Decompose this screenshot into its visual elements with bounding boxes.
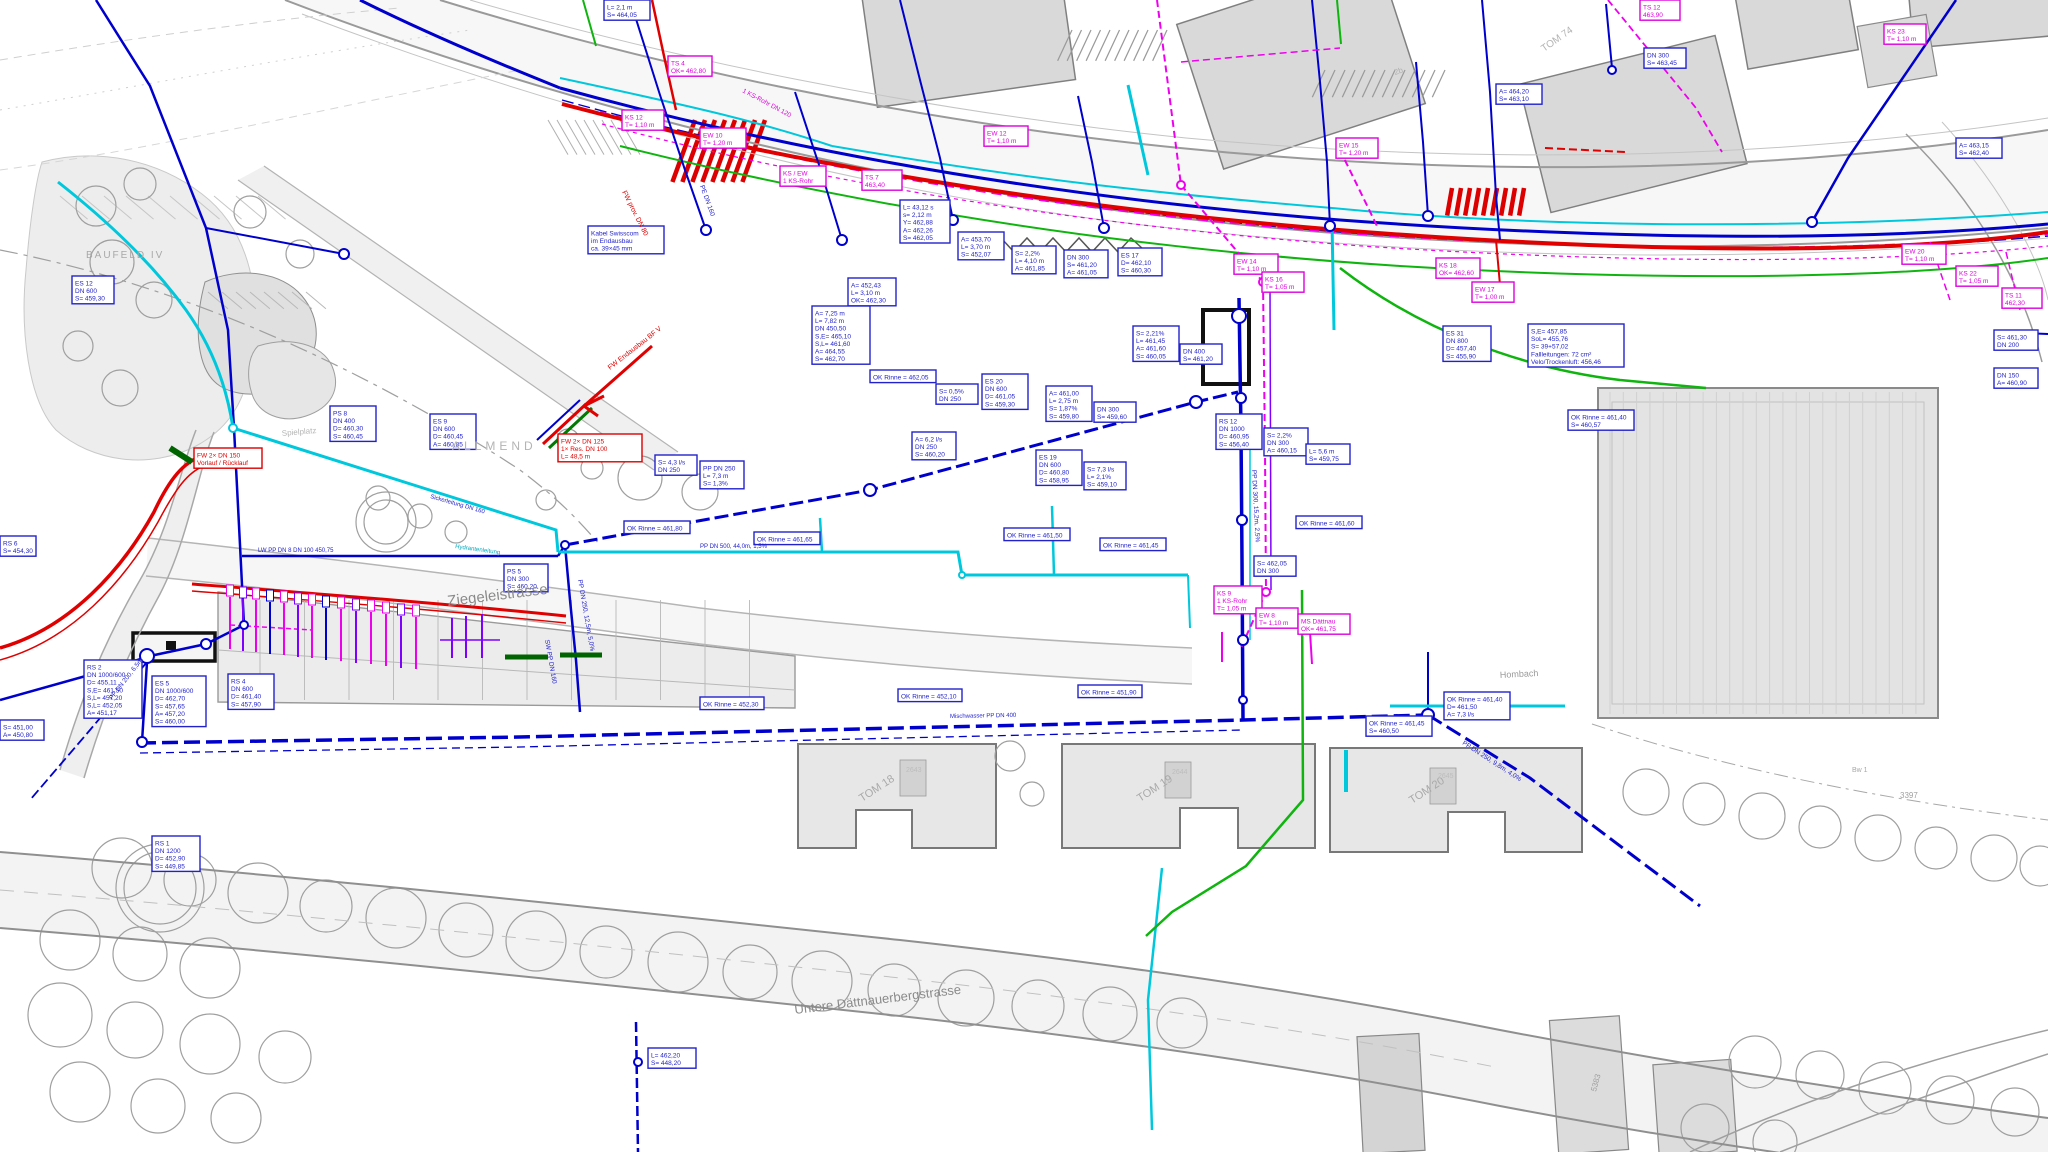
annotation-text: OK= 462,30 [851,298,886,305]
annotation-text: A= 461,60 [1136,346,1166,353]
annotation-box: A= 6,2 l/sDN 250S= 460,20 [912,432,956,460]
annotation-box: OK Rinne = 452,10 [898,689,962,702]
service-stub-box [295,593,302,604]
annotation-text: S= 462,70 [815,356,845,363]
annotation-text: A= 461,00 [1049,391,1079,398]
manhole-node [1190,396,1202,408]
annotation-text: S= 463,10 [1499,96,1529,103]
annotation-text: OK Rinne = 461,45 [1369,721,1425,728]
annotation-text: Fallleitungen: 72 cm² [1531,351,1592,358]
annotation-text: D= 452,90 [155,856,186,863]
annotation-text: S= 462,05 [1257,561,1287,568]
annotation-text: S= 457,90 [231,701,261,708]
annotation-text: KS 22 [1959,271,1977,278]
annotation-text: L= 2,1% [1087,474,1111,481]
tree-symbol [1855,815,1901,861]
annotation-box: EW 15T= 1,20 m [1336,138,1378,158]
annotation-text: KS 16 [1265,277,1283,284]
annotation-text: T= 1,10 m [625,122,654,129]
annotation-box: RS 12DN 1000D= 460,95S= 456,40 [1216,414,1262,449]
annotation-box: TS 12463,90 [1640,0,1680,20]
annotation-text: PS 8 [333,411,347,418]
annotation-text: ca. 39×45 mm [591,246,632,253]
annotation-text: S= 459,30 [985,401,1015,408]
annotation-box: DN 400S= 461,20 [1180,344,1222,364]
annotation-text: RS 1 [155,841,170,848]
annotation-text: TS 7 [865,175,879,182]
annotation-box: OK Rinne = 461,45 [1100,538,1166,551]
tree-symbol [1915,827,1957,869]
map-label: LW PP DN 8 DN 100 450,75 [258,548,334,554]
annotation-text: DN 600 [1039,462,1061,469]
annotation-text: Kabel Swisscom [591,231,639,238]
manhole-node [1807,217,1817,227]
tree-symbol [1020,782,1044,806]
annotation-text: DN 450,50 [815,326,846,333]
annotation-box: OK Rinne = 461,60 [1296,516,1362,529]
service-stub-box [383,602,390,613]
utility-plan-canvas[interactable]: ES 12DN 600S= 459,30RS 6S= 454,30RS 2DN … [0,0,2048,1152]
service-stub-box [253,588,260,599]
annotation-text: S= 452,07 [961,252,991,259]
annotation-text: OK Rinne = 462,05 [873,375,929,382]
sewer-line [140,715,1428,743]
annotation-box: OK Rinne = 461,40D= 461,50A= 7,3 l/s [1444,692,1510,720]
annotation-text: DN 600 [231,686,253,693]
map-label: PP DN 300, 15,2m, 2,5% [1250,470,1261,543]
annotation-text: FW 2× DN 125 [561,439,605,446]
manhole-node [1177,181,1185,189]
annotation-box: TS 11462,30 [2002,288,2042,308]
annotation-text: 462,30 [2005,300,2025,307]
annotation-text: A= 7,3 l/s [1447,712,1475,719]
annotation-text: L= 2,75 m [1049,398,1078,405]
annotation-text: S= 460,20 [915,452,945,459]
annotation-box: L= 5,6 mS= 459,75 [1306,444,1350,464]
annotation-box: OK Rinne = 462,05 [870,370,936,383]
contour-line [0,70,520,170]
annotation-text: A= 462,26 [903,227,933,234]
annotation-text: MS Dättnau [1301,619,1336,626]
annotation-text: KS 23 [1887,29,1905,36]
service-stub-box [240,587,247,598]
annotation-text: OK= 462,80 [671,68,706,75]
annotation-box: L= 43,12 ss= 2,12 mY= 462,88A= 462,26S= … [900,200,950,243]
island-hatch [584,120,604,155]
service-stub-box [281,591,288,602]
annotation-text: DN 400 [1183,349,1205,356]
annotation-text: 463,40 [865,182,885,189]
annotation-text: S= 457,65 [155,703,185,710]
building-hall [1598,388,1938,718]
tree-symbol [234,196,266,228]
annotation-box: RS 6S= 454,30 [0,536,36,556]
tree-symbol [107,1002,163,1058]
annotation-box: TS 7463,40 [862,170,902,190]
annotation-box: OK Rinne = 461,50 [1004,528,1070,541]
tree-symbol [1799,806,1841,848]
annotation-text: ES 19 [1039,455,1057,462]
annotation-text: L= 461,45 [1136,338,1165,345]
annotation-text: s= 2,12 m [903,212,932,219]
service-stub-box [368,600,375,611]
annotation-box: S= 7,3 l/sL= 2,1%S= 459,10 [1084,462,1126,490]
tree-symbol [1971,835,2017,881]
annotation-text: S= 460,57 [1571,422,1601,429]
annotation-box: RS 1DN 1200D= 452,90S= 449,85 [152,836,200,871]
annotation-text: EW 20 [1905,249,1925,256]
annotation-text: S= 460,50 [1369,728,1399,735]
annotation-text: S= 0,5% [939,389,964,396]
annotation-box: KS 22T= 1,05 m [1956,266,1998,286]
annotation-text: T= 1,10 m [987,138,1016,145]
service-stub-box [309,594,316,605]
annotation-text: S= 2,2% [1267,433,1292,440]
annotation-box: OK Rinne = 461,40S= 460,57 [1568,410,1634,430]
annotation-text: L= 4,10 m [1015,258,1044,265]
annotation-text: S= 459,60 [1097,414,1127,421]
annotation-box: EW 8T= 1,10 m [1256,608,1298,628]
annotation-box: DN 300S= 459,60 [1094,402,1136,422]
annotation-text: FW 2× DN 150 [197,453,241,460]
tree-symbol [131,1079,185,1133]
annotation-text: Velo/Trockenluft: 456,46 [1531,359,1601,366]
annotation-text: L= 3,70 m [961,244,990,251]
service-stub-box [398,604,405,615]
annotation-text: DN 600 [433,426,455,433]
annotation-box: KS / EW1 KS-Rohr [780,166,826,186]
stair-core [900,760,926,796]
gas-line [583,0,596,46]
annotation-text: ES 9 [433,419,447,426]
manhole-node [864,484,876,496]
manhole-node [201,639,211,649]
tree-symbol [50,1062,110,1122]
annotation-text: L= 462,20 [651,1053,680,1060]
annotation-box: ES 5DN 1000/600D= 462,70S= 457,65A= 457,… [152,676,206,727]
manhole-node [1238,635,1248,645]
annotation-box: KS 23T= 1,10 m [1884,24,1926,44]
annotation-text: S,L= 452,05 [87,703,123,710]
annotation-box: L= 2,1 mS= 464,05 [604,0,650,20]
annotation-text: A= 450,80 [3,732,33,739]
annotation-text: S= 1,87% [1049,406,1078,413]
annotation-box: KS 18OK= 462,60 [1436,258,1480,278]
map-label: Spielplatz [281,426,316,438]
annotation-box: OK Rinne = 461,45S= 460,50 [1366,716,1432,736]
annotation-text: S= 459,75 [1309,456,1339,463]
annotation-box: OK Rinne = 461,65 [754,532,820,545]
annotation-text: A= 7,25 m [815,311,845,318]
annotation-text: S= 39+57,02 [1531,344,1569,351]
annotation-text: S= 7,3 l/s [1087,467,1115,474]
annotation-text: S= 1,3% [703,481,728,488]
manhole-node [1423,211,1433,221]
annotation-text: S= 464,05 [607,12,637,19]
annotation-box: A= 463,15S= 462,40 [1956,138,2002,158]
map-label: Hombach [1500,668,1539,680]
map-label: 2643 [906,767,922,774]
annotation-text: D= 460,95 [1219,434,1250,441]
service-stub-box [413,605,420,616]
manhole-node [1262,588,1270,596]
annotation-text: D= 461,40 [231,694,262,701]
annotation-text: S= 461,30 [1997,335,2027,342]
annotation-box: KS 16T= 1,05 m [1262,272,1304,292]
annotation-text: KS 18 [1439,263,1457,270]
bottom-road-surface [0,852,2048,1152]
annotation-text: DN 800 [1446,338,1468,345]
tree-symbol [1623,769,1669,815]
annotation-text: S,E= 457,85 [1531,329,1567,336]
annotation-text: D= 462,70 [155,696,186,703]
annotation-text: S= 451,00 [3,725,33,732]
annotation-text: S= 460,30 [1121,268,1151,275]
annotation-box: EW 14T= 1,10 m [1234,254,1278,274]
annotation-text: 1 KS-Rohr [783,178,814,185]
annotation-box: FW 2× DN 1251× Res. DN 100L= 48,5 m [558,434,642,462]
manhole-node [137,737,147,747]
annotation-text: S= 459,30 [75,296,105,303]
annotation-text: S= 462,05 [903,235,933,242]
parking-hatch [1422,70,1435,97]
annotation-text: TS 4 [671,61,685,68]
annotation-text: PS 5 [507,569,521,576]
annotation-text: S,E= 465,10 [815,333,851,340]
annotation-text: DN 300 [1257,568,1279,575]
annotation-text: S= 463,45 [1647,60,1677,67]
annotation-text: 1 KS-Rohr [1217,598,1248,605]
annotation-text: S= 459,10 [1087,482,1117,489]
annotation-text: OK= 462,60 [1439,270,1474,277]
manhole-node [240,621,248,629]
annotation-text: ES 20 [985,379,1003,386]
manhole-node [837,235,847,245]
manhole-node [1325,221,1335,231]
annotation-text: DN 600 [75,288,97,295]
manhole-node [1608,66,1616,74]
annotation-text: OK Rinne = 452,30 [703,702,759,709]
annotation-text: T= 1,05 m [1217,606,1246,613]
manhole-node [1232,309,1246,323]
annotation-text: T= 1,20 m [1339,150,1368,157]
annotation-text: S= 4,3 l/s [658,460,686,467]
manhole-node [561,541,569,549]
annotation-text: D= 460,80 [1039,470,1070,477]
annotation-box: DN 150A= 460,90 [1994,368,2038,388]
annotation-box: S= 2,2%L= 4,10 mA= 461,85 [1012,246,1056,274]
annotation-text: D= 457,40 [1446,346,1477,353]
sewer-line [142,662,147,742]
annotation-box: A= 461,00L= 2,75 mS= 1,87%S= 459,80 [1046,386,1092,421]
annotation-text: T= 1,00 m [1475,294,1504,301]
annotation-box: ES 20DN 600D= 461,05S= 459,30 [982,374,1028,409]
annotation-box: PS 8DN 400D= 460,30S= 460,45 [330,406,376,441]
pond-2 [249,342,336,419]
island-hatch [575,120,595,155]
annotation-text: A= 464,55 [815,349,845,356]
path-edge [264,166,678,452]
annotation-box: ES 12DN 600S= 459,30 [72,276,114,304]
tree-symbol [180,1014,240,1074]
annotation-text: DN 1000/600 [87,672,126,679]
annotation-text: EW 8 [1259,613,1275,620]
annotation-text: RS 12 [1219,419,1237,426]
annotation-text: OK Rinne = 452,10 [901,694,957,701]
annotation-text: ES 17 [1121,253,1139,260]
tree-symbol [995,741,1025,771]
annotation-text: T= 1,10 m [1259,620,1288,627]
annotation-text: DN 300 [1267,440,1289,447]
annotation-text: A= 453,70 [961,237,991,244]
annotation-text: Vorlauf / Rücklauf [197,460,248,467]
annotation-text: S= 459,80 [1049,413,1079,420]
service-stub-box [353,599,360,610]
annotation-box: DN 300S= 463,45 [1644,48,1686,68]
annotation-text: DN 1000/600 [155,688,194,695]
annotation-text: EW 14 [1237,259,1257,266]
annotation-text: A= 451,17 [87,710,117,717]
annotation-text: T= 1,05 m [1265,284,1294,291]
annotation-text: EW 17 [1475,287,1495,294]
annotation-text: DN 250 [939,396,961,403]
annotation-text: L= 3,10 m [851,290,880,297]
tree-symbol [2020,846,2048,886]
annotation-text: S,L= 461,60 [815,341,851,348]
annotation-text: S= 448,20 [651,1060,681,1067]
annotation-box: KS 12T= 1,10 m [622,110,664,130]
annotation-text: L= 43,12 s [903,205,934,212]
annotation-text: S= 460,45 [333,433,363,440]
manhole-node [1239,696,1247,704]
annotation-box: S= 462,05DN 300 [1254,556,1296,576]
annotation-text: S= 461,20 [1067,262,1097,269]
sewer-line [1606,4,1612,68]
annotation-text: OK Rinne = 461,65 [757,537,813,544]
map-label: 2644 [1172,769,1188,776]
annotation-text: S= 456,40 [1219,441,1249,448]
annotation-text: S= 449,85 [155,863,185,870]
annotation-box: S= 4,3 l/sDN 250 [655,455,697,475]
annotation-box: S= 461,30DN 200 [1994,330,2038,350]
annotation-box: A= 452,43L= 3,10 mOK= 462,30 [848,278,896,306]
manhole-node [701,225,711,235]
annotation-text: EW 10 [703,133,723,140]
annotation-box: ES 17D= 462,10S= 460,30 [1118,248,1162,276]
annotation-text: DN 1000 [1219,426,1245,433]
annotation-text: L= 5,6 m [1309,449,1334,456]
island-hatch [593,120,613,155]
annotation-text: D= 460,30 [333,426,364,433]
sewer-line [1239,298,1243,720]
manhole-node [1237,515,1247,525]
tree-symbol [408,504,432,528]
annotation-text: RS 6 [3,541,18,548]
service-stub-box [338,597,345,608]
annotation-text: DN 150 [1997,373,2019,380]
annotation-box: RS 4DN 600D= 461,40S= 457,90 [228,674,274,709]
water-line [558,552,1188,575]
manhole-node [1099,223,1109,233]
annotation-text: RS 2 [87,665,102,672]
annotation-box: ES 31DN 800D= 457,40S= 455,90 [1443,326,1491,361]
annotation-text: S= 458,95 [1039,477,1069,484]
map-label: BAUFELD IV [86,250,164,261]
manhole-node [339,249,349,259]
annotation-text: A= 460,15 [1267,448,1297,455]
annotation-text: ES 31 [1446,331,1464,338]
annotation-text: EW 15 [1339,143,1359,150]
annotation-text: DN 400 [333,418,355,425]
annotation-text: KS 12 [625,115,643,122]
island-hatch [557,120,577,155]
annotation-box: A= 7,25 mL= 7,82 mDN 450,50S,E= 465,10S,… [812,306,870,364]
annotation-box: EW 12T= 1,10 m [984,126,1028,146]
annotation-text: D= 462,10 [1121,260,1152,267]
annotation-text: S= 462,40 [1959,150,1989,157]
annotation-text: T= 1,05 m [1959,278,1988,285]
annotation-box: PP DN 250L= 7,3 mS= 1,3% [700,461,744,489]
water-line [1188,575,1190,628]
structure-black-fill [166,641,176,650]
annotation-text: DN 300 [1067,255,1089,262]
map-label: ALLMEND [452,439,537,453]
tree-symbol [1739,793,1785,839]
annotation-box: OK Rinne = 451,90 [1078,685,1142,698]
annotation-text: 463,90 [1643,12,1663,19]
annotation-text: KS 9 [1217,591,1231,598]
annotation-text: A= 460,90 [1997,380,2027,387]
manhole-node [634,1058,642,1066]
manhole-node [1236,393,1246,403]
annotation-text: im Endausbau [591,238,633,245]
annotation-text: L= 7,3 m [703,473,728,480]
annotation-text: D= 461,05 [985,394,1016,401]
annotation-box: S,E= 457,85SoL= 455,76S= 39+57,02Falllei… [1528,324,1624,367]
annotation-box: S= 2,21%L= 461,45A= 461,60S= 460,05 [1133,326,1179,361]
annotation-text: T= 1,20 m [703,140,732,147]
annotation-box: S= 451,00A= 450,80 [0,720,44,740]
building [860,0,1075,107]
annotation-text: T= 1,10 m [1887,36,1916,43]
annotation-box: ES 19DN 600D= 460,80S= 458,95 [1036,450,1082,485]
annotation-box: FW 2× DN 150Vorlauf / Rücklauf [194,448,262,468]
service-stub-box [227,585,234,596]
annotation-text: OK Rinne = 461,80 [627,526,683,533]
tree-symbol [366,486,390,510]
manhole-node [959,572,965,578]
annotation-text: S= 460,00 [155,719,185,726]
annotation-text: A= 463,15 [1959,143,1989,150]
tree-symbol [445,521,467,543]
annotation-text: A= 457,20 [155,711,185,718]
tree-symbol [211,1093,261,1143]
service-stub-box [267,590,274,601]
annotation-text: OK Rinne = 461,45 [1103,543,1159,550]
annotation-text: L= 2,1 m [607,5,632,12]
heating-line [1496,240,1500,285]
annotation-box: L= 462,20S= 448,20 [648,1048,696,1068]
tree-symbol [536,490,556,510]
tree-symbol [28,983,92,1047]
annotation-text: TS 11 [2005,293,2022,300]
tree-symbol [259,1031,311,1083]
annotation-text: T= 1,10 m [1905,256,1934,263]
annotation-text: S= 455,90 [1446,353,1476,360]
building-tom18 [798,744,996,848]
annotation-text: A= 461,05 [1067,270,1097,277]
annotation-text: RS 4 [231,679,246,686]
